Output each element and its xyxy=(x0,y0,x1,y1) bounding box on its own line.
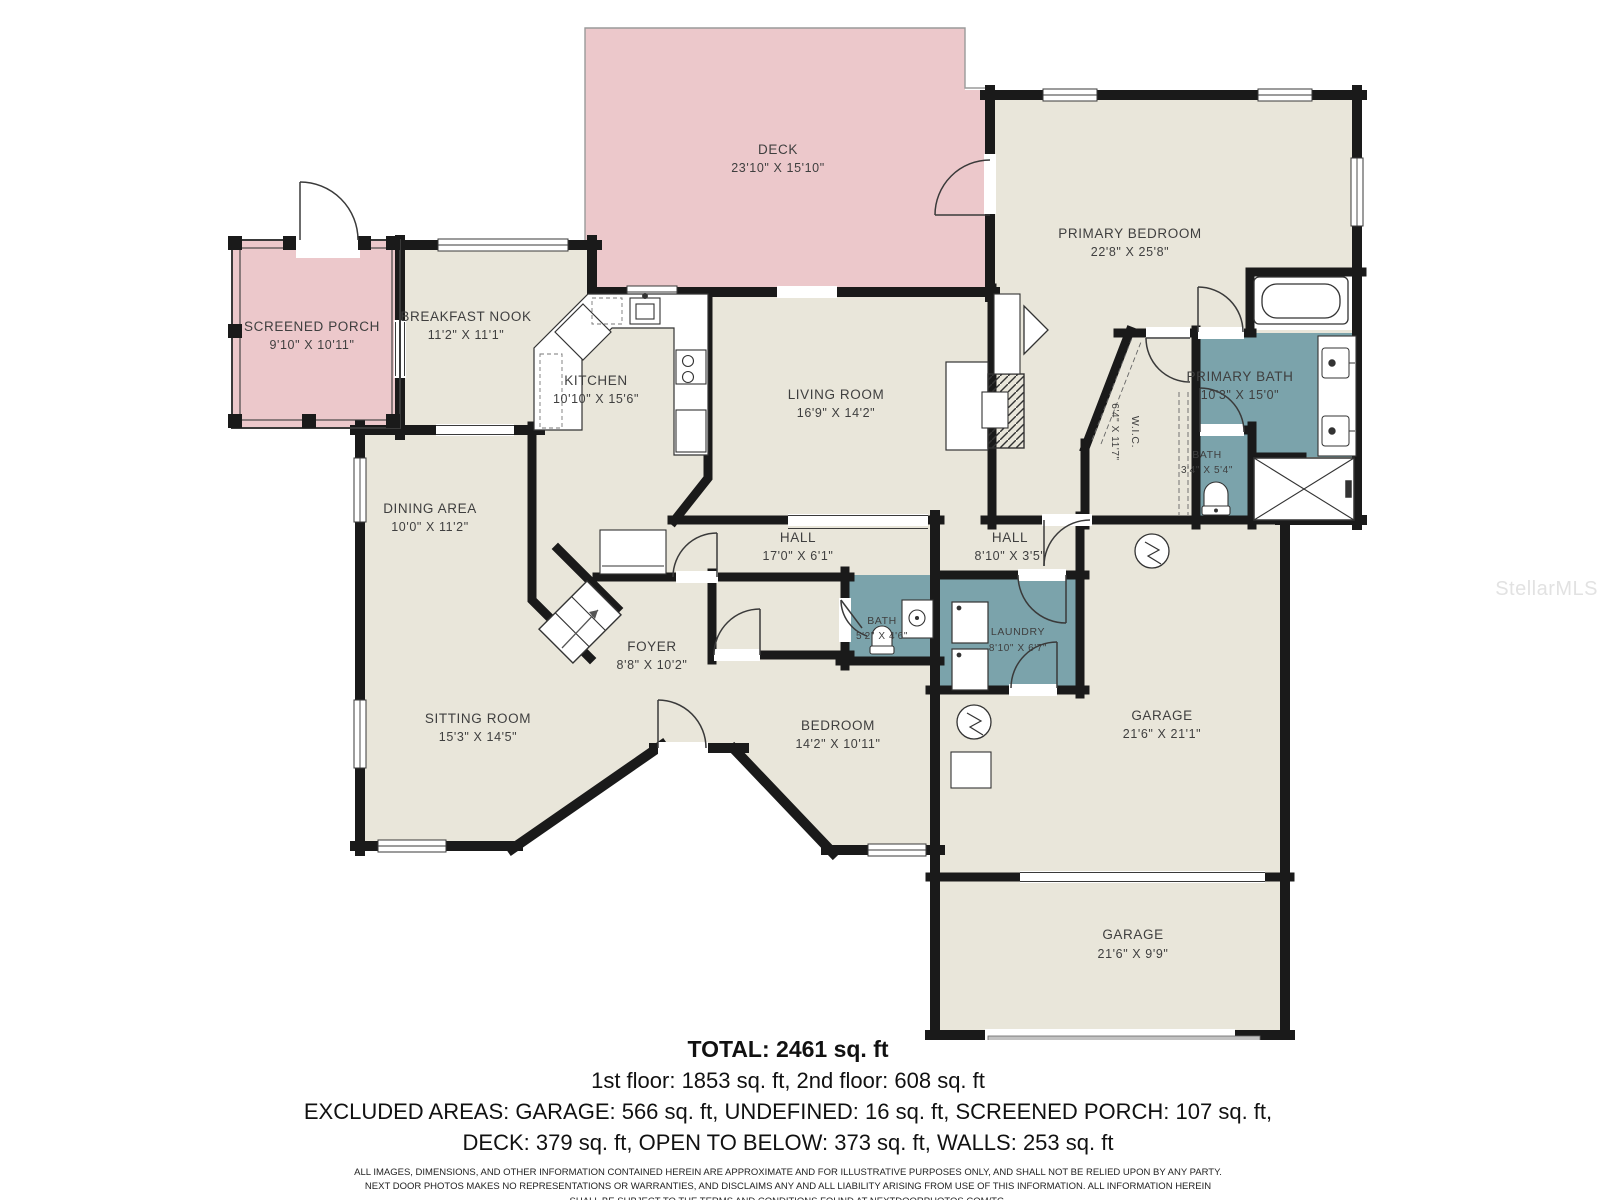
disclaimer-line3: SHALL BE SUBJECT TO THE TERMS AND CONDIT… xyxy=(0,1195,1588,1200)
porch-exterior-door xyxy=(300,182,358,240)
svg-text:3'4" X 5'4": 3'4" X 5'4" xyxy=(1181,465,1233,476)
bathtub xyxy=(1254,277,1348,324)
svg-text:DECK: DECK xyxy=(758,142,798,157)
svg-text:17'0" X 6'1": 17'0" X 6'1" xyxy=(763,549,834,563)
foyer-closet xyxy=(600,530,666,574)
water-heater xyxy=(957,705,991,739)
utility-platform xyxy=(951,752,991,788)
svg-text:14'2" X 10'11": 14'2" X 10'11" xyxy=(795,737,880,751)
svg-text:GARAGE: GARAGE xyxy=(1102,927,1163,942)
disclaimer-line1: ALL IMAGES, DIMENSIONS, AND OTHER INFORM… xyxy=(0,1166,1588,1180)
excluded-areas-line1: EXCLUDED AREAS: GARAGE: 566 sq. ft, UNDE… xyxy=(0,1099,1588,1125)
svg-text:8'8" X 10'2": 8'8" X 10'2" xyxy=(617,658,688,672)
area-summary: TOTAL: 2461 sq. ft 1st floor: 1853 sq. f… xyxy=(0,1036,1588,1200)
svg-text:5'2" X 4'6": 5'2" X 4'6" xyxy=(856,631,908,642)
svg-text:PRIMARY BEDROOM: PRIMARY BEDROOM xyxy=(1058,226,1202,241)
dryer xyxy=(952,649,988,690)
svg-text:8'10" X 3'5": 8'10" X 3'5" xyxy=(975,549,1046,563)
svg-text:BATH: BATH xyxy=(1192,449,1222,461)
svg-text:LIVING ROOM: LIVING ROOM xyxy=(788,387,885,402)
washer xyxy=(952,602,988,643)
svg-text:11'2" X 11'1": 11'2" X 11'1" xyxy=(428,328,505,342)
svg-text:10'0" X 11'2": 10'0" X 11'2" xyxy=(391,520,469,534)
svg-text:FOYER: FOYER xyxy=(627,639,677,654)
shower xyxy=(1254,458,1354,520)
svg-text:10'10" X 15'6": 10'10" X 15'6" xyxy=(553,392,639,406)
floor-areas: 1st floor: 1853 sq. ft, 2nd floor: 608 s… xyxy=(0,1068,1588,1094)
disclaimer-line2: NEXT DOOR PHOTOS MAKES NO REPRESENTATION… xyxy=(0,1180,1588,1194)
svg-text:SCREENED PORCH: SCREENED PORCH xyxy=(244,319,380,334)
svg-text:16'9" X 14'2": 16'9" X 14'2" xyxy=(797,406,875,420)
svg-text:BREAKFAST NOOK: BREAKFAST NOOK xyxy=(400,309,531,324)
upper-bath-toilet xyxy=(1202,482,1230,515)
svg-text:21'6" X 21'1": 21'6" X 21'1" xyxy=(1123,727,1201,741)
deck-area xyxy=(585,28,990,292)
living-closet xyxy=(994,294,1020,374)
stellar-mls-watermark: StellarMLS xyxy=(1438,578,1598,601)
svg-text:KITCHEN: KITCHEN xyxy=(564,373,627,388)
floor-plan-drawing: DECK23'10" X 15'10" SCREENED PORCH9'10" … xyxy=(0,0,1600,1040)
floor-plan-page: DECK23'10" X 15'10" SCREENED PORCH9'10" … xyxy=(0,0,1600,1200)
kitchen-sink xyxy=(630,294,660,324)
porch-door-gap xyxy=(296,232,360,258)
svg-text:DINING AREA: DINING AREA xyxy=(383,501,477,516)
svg-text:22'8" X 25'8": 22'8" X 25'8" xyxy=(1091,245,1169,259)
stove xyxy=(676,350,706,384)
svg-text:21'6" X 9'9": 21'6" X 9'9" xyxy=(1098,947,1169,961)
fireplace-box xyxy=(982,392,1008,428)
svg-text:9'10" X 10'11": 9'10" X 10'11" xyxy=(269,338,354,352)
svg-text:10'3" X 15'0": 10'3" X 15'0" xyxy=(1201,388,1279,402)
svg-text:LAUNDRY: LAUNDRY xyxy=(991,626,1045,638)
svg-text:6'4" X 11'7": 6'4" X 11'7" xyxy=(1109,403,1120,460)
svg-text:HALL: HALL xyxy=(992,530,1028,545)
svg-text:PRIMARY BATH: PRIMARY BATH xyxy=(1187,369,1294,384)
svg-text:SITTING ROOM: SITTING ROOM xyxy=(425,711,531,726)
svg-text:W.I.C.: W.I.C. xyxy=(1129,416,1141,448)
svg-text:HALL: HALL xyxy=(780,530,816,545)
svg-text:GARAGE: GARAGE xyxy=(1131,708,1192,723)
svg-text:23'10" X 15'10": 23'10" X 15'10" xyxy=(731,161,825,175)
svg-text:15'3" X 14'5": 15'3" X 14'5" xyxy=(439,730,517,744)
svg-text:BATH: BATH xyxy=(867,615,897,627)
svg-text:8'10" X 6'7": 8'10" X 6'7" xyxy=(989,643,1047,654)
furnace xyxy=(1135,534,1169,568)
shower-head xyxy=(1346,481,1351,497)
svg-text:BEDROOM: BEDROOM xyxy=(801,718,875,733)
total-area: TOTAL: 2461 sq. ft xyxy=(0,1036,1588,1063)
disclaimer: ALL IMAGES, DIMENSIONS, AND OTHER INFORM… xyxy=(0,1166,1588,1200)
screened-porch-area xyxy=(232,240,400,428)
refrigerator xyxy=(676,410,706,452)
excluded-areas-line2: DECK: 379 sq. ft, OPEN TO BELOW: 373 sq.… xyxy=(0,1130,1588,1156)
